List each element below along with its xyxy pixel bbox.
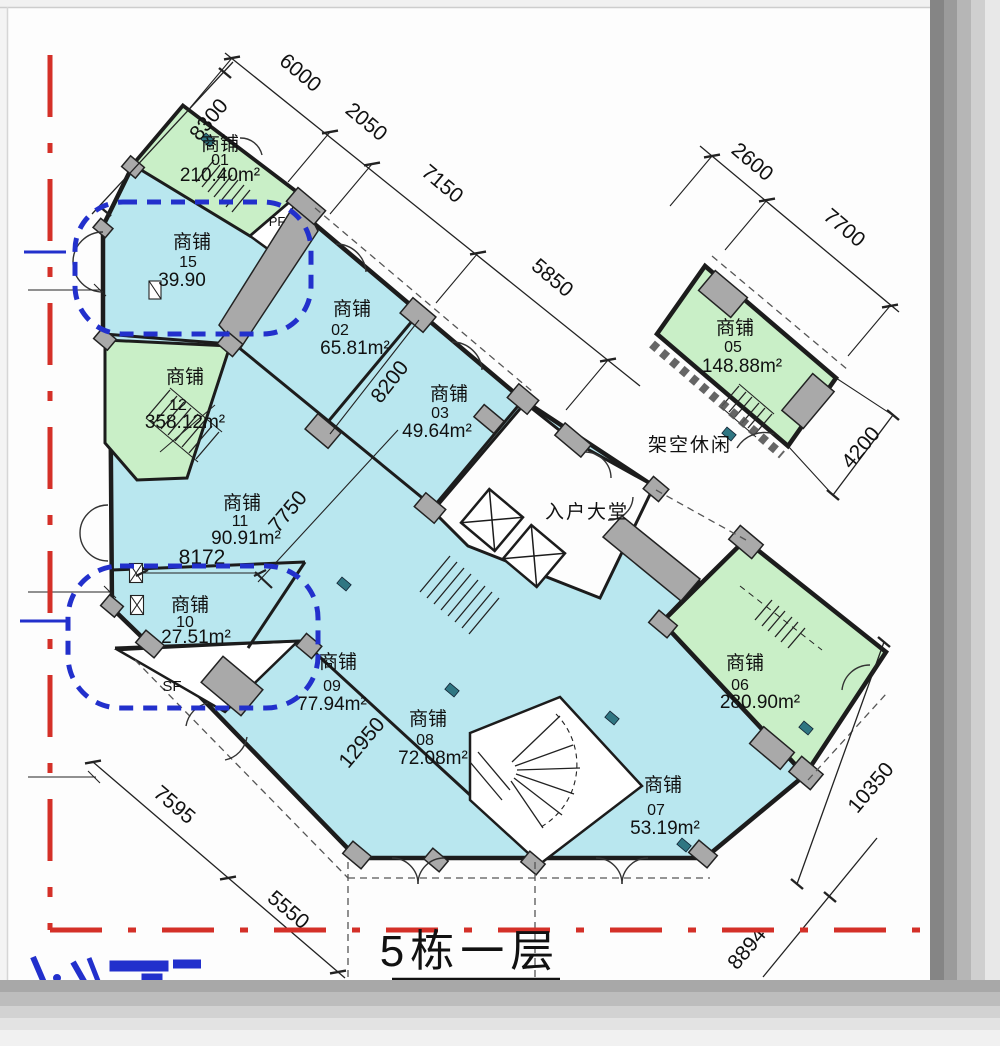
sf-label: SF [162,678,181,695]
room-12-area: 358.12m² [145,412,225,433]
room-10-area: 27.51m² [161,627,231,648]
room-02-area: 65.81m² [320,338,390,359]
room-11-label: 商铺 [223,492,261,514]
plan-title-group: 5栋一层 [380,927,560,979]
room-10-label: 商铺 [171,594,209,616]
room-03-label: 商铺 [430,383,468,405]
room-05-label: 商铺 [716,317,754,339]
room-12-label: 商铺 [166,366,204,388]
pf-label: PF [269,214,286,229]
room-06-area: 280.90m² [720,692,800,713]
plan-title: 5栋一层 [380,927,560,976]
room-11-area: 90.91m² [211,528,281,549]
room-06-label: 商铺 [726,652,764,674]
room-03-area: 49.64m² [402,421,472,442]
floorplan-svg: 8300 6000 2050 7150 5850 2600 7700 4200 … [0,0,1000,1046]
room-07-area: 53.19m² [630,818,700,839]
room-02-num: 02 [331,322,349,339]
room-08-label: 商铺 [409,708,447,730]
room-09-area: 77.94m² [297,694,367,715]
room-01-area: 210.40m² [180,165,260,186]
room-09-num: 09 [323,678,341,695]
room-15-num: 15 [179,254,197,271]
leisure-label: 架空休闲 [648,434,732,456]
room-03-num: 03 [431,405,449,422]
room-05-num: 05 [724,339,742,356]
room-08-num: 08 [416,732,434,749]
room-07-num: 07 [647,802,665,819]
room-09-label: 商铺 [319,651,357,673]
room-07-label: 商铺 [644,774,682,796]
room-02-label: 商铺 [333,298,371,320]
lobby-label: 入户大堂 [545,501,629,523]
room-15-area: 39.90 [158,270,206,291]
room-15-label: 商铺 [173,231,211,253]
floorplan-photo: 8300 6000 2050 7150 5850 2600 7700 4200 … [0,0,1000,1046]
room-08-area: 72.08m² [398,748,468,769]
room-05-area: 148.88m² [702,356,782,377]
